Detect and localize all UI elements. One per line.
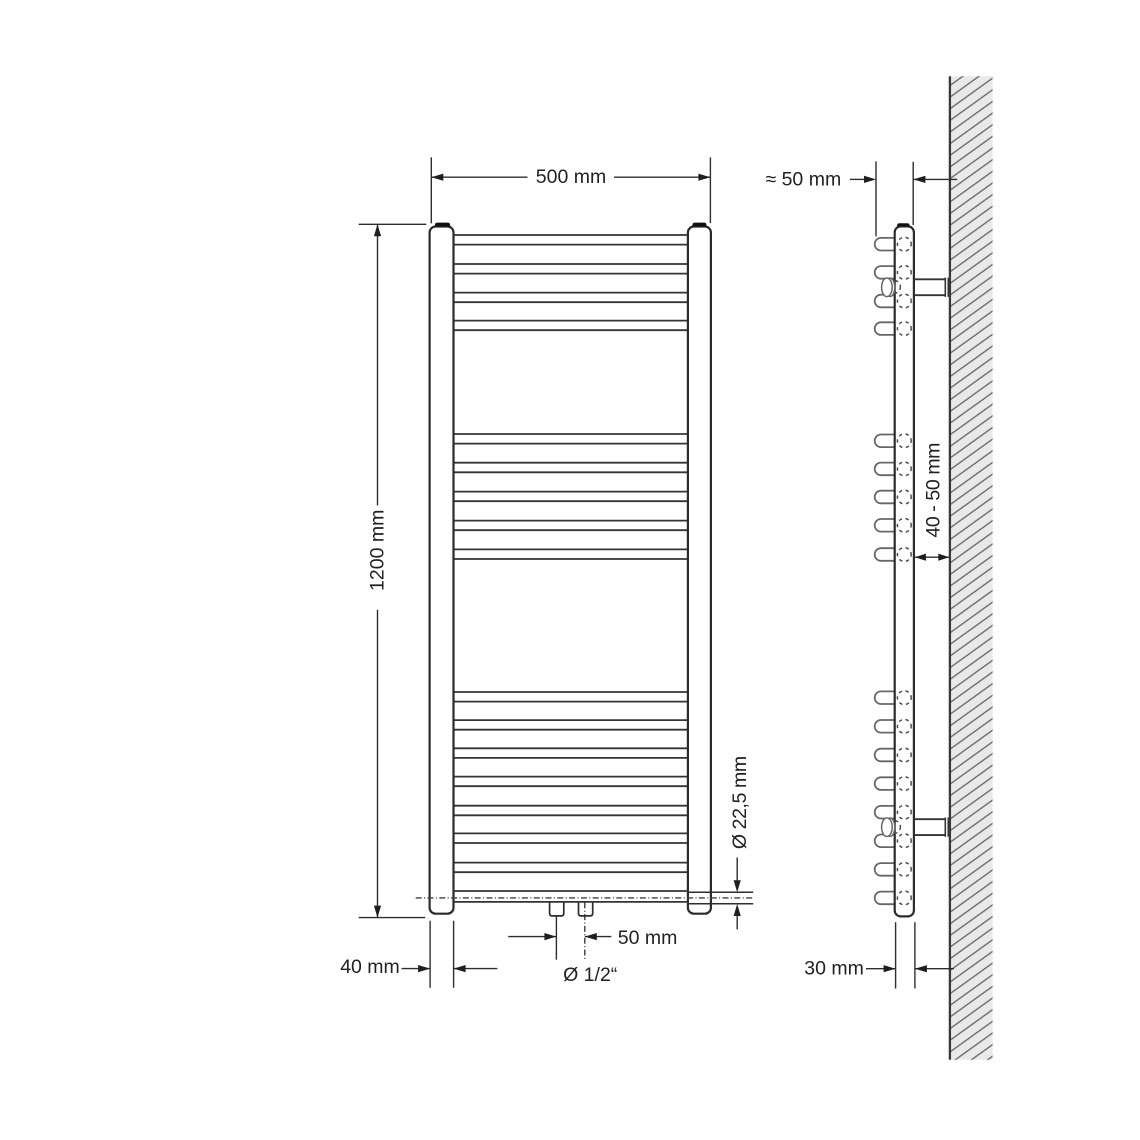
svg-text:≈ 50 mm: ≈ 50 mm <box>765 168 841 190</box>
svg-text:40 mm: 40 mm <box>340 956 400 978</box>
svg-text:1200 mm: 1200 mm <box>367 510 389 591</box>
svg-text:Ø 22,5 mm: Ø 22,5 mm <box>729 756 751 849</box>
svg-text:30 mm: 30 mm <box>804 958 864 980</box>
svg-text:50 mm: 50 mm <box>618 927 678 949</box>
svg-text:500 mm: 500 mm <box>536 166 606 188</box>
svg-text:Ø 1/2“: Ø 1/2“ <box>563 964 617 986</box>
svg-text:40 - 50 mm: 40 - 50 mm <box>923 443 945 538</box>
